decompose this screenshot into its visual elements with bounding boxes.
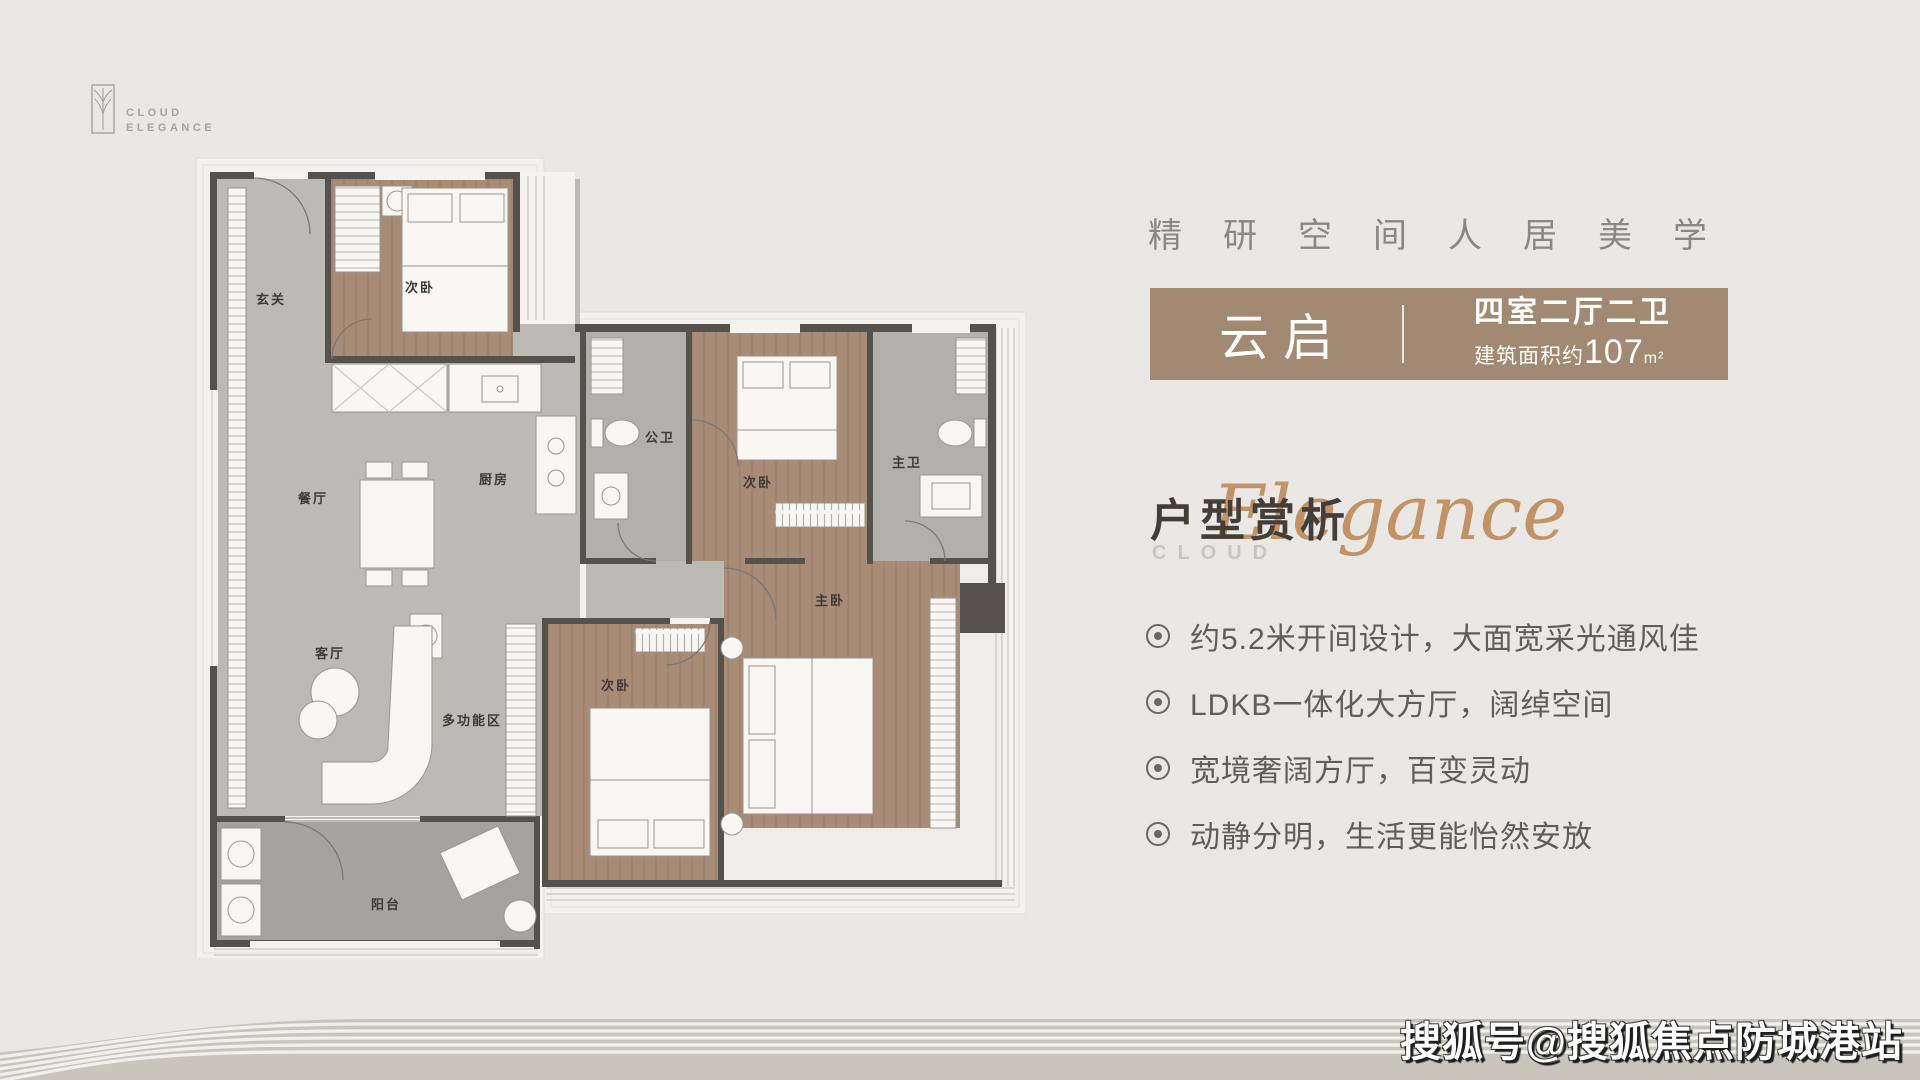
room-label-multi-zone: 多功能区 — [442, 713, 502, 728]
room-label-entry: 玄关 — [256, 292, 286, 307]
section-eyebrow: CLOUD — [1152, 542, 1278, 565]
unit-area-unit: m² — [1644, 350, 1665, 367]
unit-area: 建筑面积约107m² — [1474, 333, 1672, 372]
unit-area-value: 107 — [1584, 333, 1644, 371]
room-label-bedroom-bottom: 次卧 — [601, 678, 631, 693]
floorplan: 玄关 次卧 餐厅 厨房 公卫 次卧 主卫 主卧 客厅 多功能区 次卧 阳台 — [170, 128, 1050, 958]
room-label-living: 客厅 — [315, 646, 345, 661]
room-label-bedroom-top: 次卧 — [405, 280, 435, 295]
feature-item: 宽境奢阔方厅，百变灵动 — [1146, 735, 1700, 801]
room-label-master-bath: 主卫 — [892, 455, 922, 470]
room-label-public-bath: 公卫 — [645, 430, 675, 445]
section-header: Elegance 户型赏析 CLOUD — [1150, 480, 1670, 590]
unit-card: 云启 四室二厅二卫 建筑面积约107m² — [1150, 288, 1728, 380]
room-label-kitchen: 厨房 — [479, 472, 509, 487]
brand-line1: CLOUD — [126, 106, 215, 121]
feature-item: 动静分明，生活更能怡然安放 — [1146, 801, 1700, 867]
feature-item: 约5.2米开间设计，大面宽采光通风佳 — [1146, 603, 1700, 669]
feature-text: 动静分明，生活更能怡然安放 — [1190, 812, 1593, 856]
unit-layout: 四室二厅二卫 — [1474, 296, 1672, 331]
feature-text: 约5.2米开间设计，大面宽采光通风佳 — [1190, 614, 1700, 658]
room-label-bedroom-mid: 次卧 — [743, 475, 773, 490]
section-title: 户型赏析 — [1150, 484, 1350, 549]
target-bullet-icon — [1146, 756, 1170, 780]
room-label-dining: 餐厅 — [297, 491, 328, 506]
target-bullet-icon — [1146, 822, 1170, 846]
feature-text: LDKB一体化大方厅，阔绰空间 — [1190, 680, 1613, 724]
feature-text: 宽境奢阔方厅，百变灵动 — [1190, 746, 1531, 790]
feature-item: LDKB一体化大方厅，阔绰空间 — [1146, 669, 1700, 735]
room-label-master-bedroom: 主卧 — [815, 593, 845, 608]
cloud-elegance-logo-icon — [91, 84, 115, 134]
room-label-balcony: 阳台 — [371, 897, 401, 912]
poster: CLOUD ELEGANCE — [0, 0, 1920, 1080]
watermark: 搜狐号@搜狐焦点防城港站 — [1400, 1008, 1903, 1068]
target-bullet-icon — [1146, 624, 1170, 648]
unit-name: 云启 — [1150, 298, 1402, 370]
page-title: 精研空间人居美学 — [1148, 208, 1748, 257]
feature-list: 约5.2米开间设计，大面宽采光通风佳 LDKB一体化大方厅，阔绰空间 宽境奢阔方… — [1146, 603, 1700, 867]
unit-area-label: 建筑面积约 — [1474, 345, 1584, 368]
target-bullet-icon — [1146, 690, 1170, 714]
